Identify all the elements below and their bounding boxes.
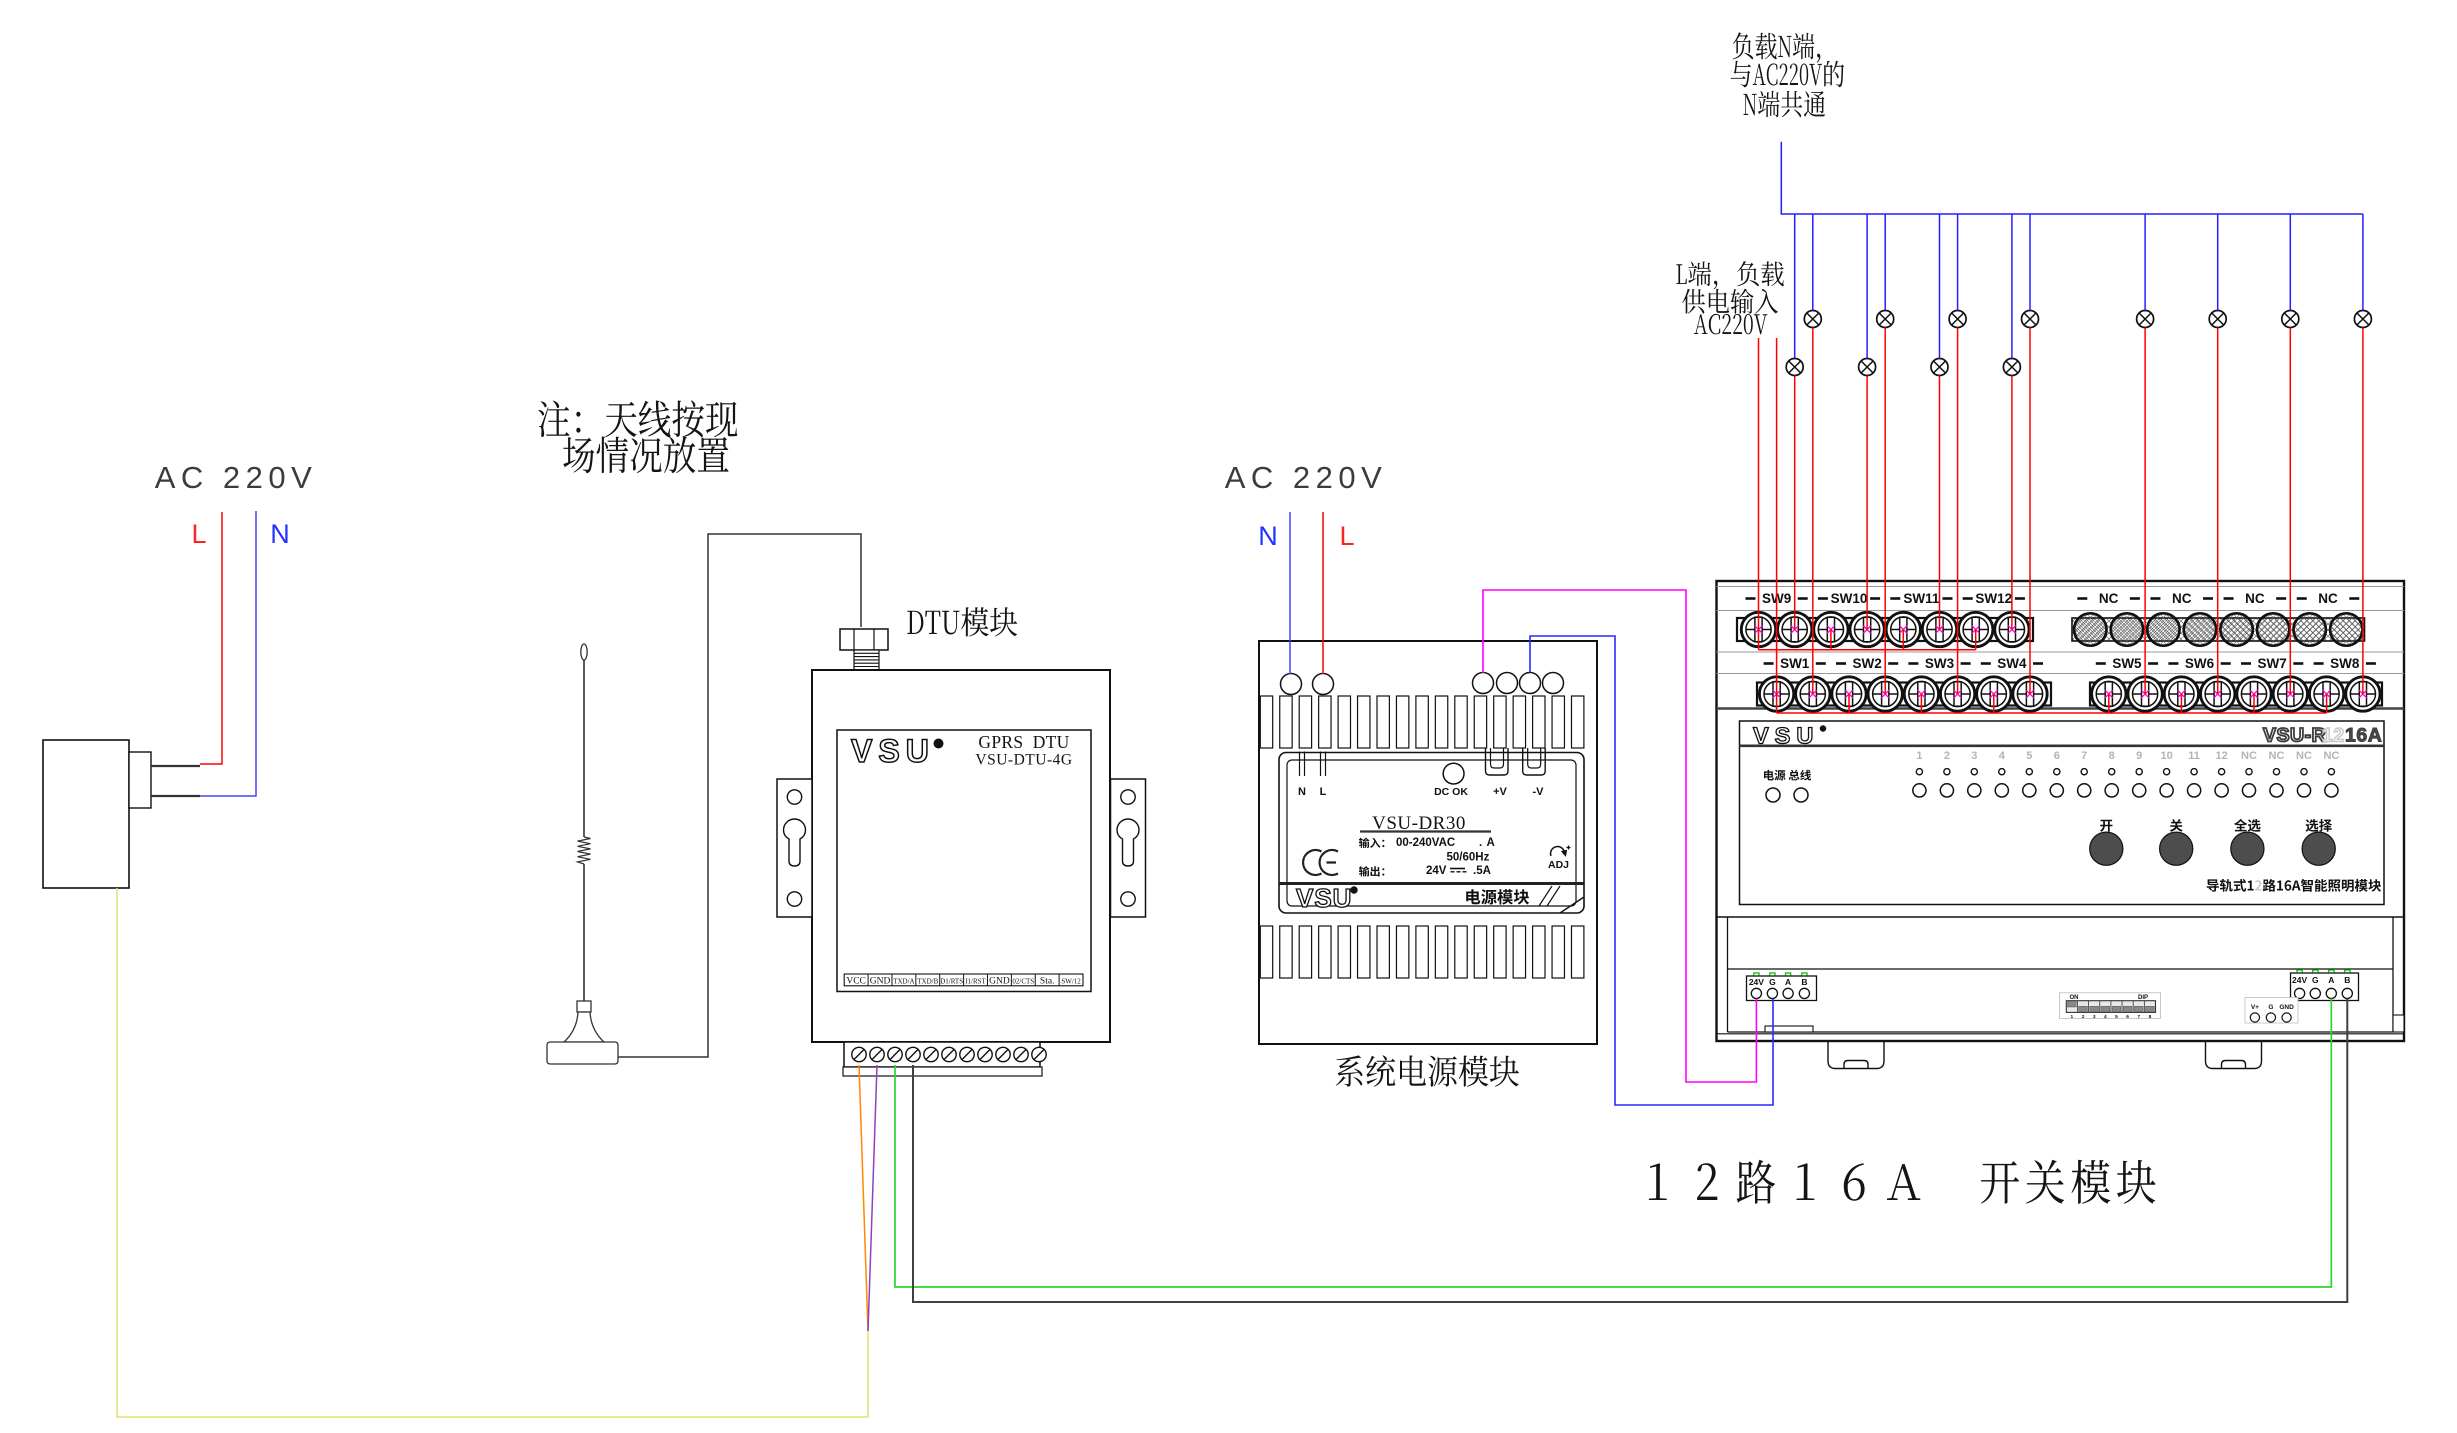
svg-text:DIP: DIP [2138,995,2148,1001]
svg-text:16A: 16A [2345,725,2382,747]
svg-text:7: 7 [2081,750,2087,762]
svg-text:+V: +V [1493,786,1507,798]
svg-text:A: A [1487,837,1495,849]
svg-text:VSU: VSU [1296,883,1352,913]
svg-text:SW11: SW11 [1903,591,1940,606]
svg-text:00-240VAC: 00-240VAC [1396,837,1455,849]
svg-text:B: B [2344,975,2350,985]
svg-text:8: 8 [2149,1014,2152,1020]
svg-text:5: 5 [2115,1014,2118,1020]
svg-text:N: N [1258,521,1278,551]
svg-text:L: L [191,519,206,549]
svg-text:DC OK: DC OK [1434,786,1468,798]
svg-text:7: 7 [2137,1014,2140,1020]
svg-text:VCC: VCC [846,977,866,987]
svg-text:TXD/B: TXD/B [917,978,938,986]
svg-text:3: 3 [2093,1014,2096,1020]
svg-text:NC: NC [2296,750,2312,762]
svg-text:N: N [1298,786,1306,798]
svg-text:NC: NC [2269,750,2285,762]
svg-text:TXD/A: TXD/A [893,978,914,986]
svg-text:NC: NC [2099,591,2119,606]
svg-text:-V: -V [1533,786,1545,798]
svg-text:12: 12 [2322,725,2345,747]
svg-text:AC 220V: AC 220V [155,460,318,495]
svg-text:NC: NC [2172,591,2192,606]
svg-text:L: L [1320,786,1327,798]
svg-text:G: G [2268,1004,2273,1011]
svg-text:VSU-R: VSU-R [2263,725,2326,747]
svg-text:6: 6 [2054,750,2060,762]
svg-text:NC: NC [2241,750,2257,762]
svg-text:6: 6 [2126,1014,2129,1020]
svg-text:SW8: SW8 [2330,656,2360,671]
svg-text:9: 9 [2136,750,2142,762]
svg-text:.5A: .5A [1473,865,1491,877]
svg-text:L: L [1339,521,1354,551]
svg-text:GND: GND [2279,1004,2294,1011]
svg-text:ON: ON [2070,995,2079,1001]
svg-text:24V: 24V [1749,977,1764,987]
svg-text:2: 2 [2082,1014,2085,1020]
svg-text:4: 4 [1999,750,2006,762]
svg-text:NC: NC [2245,591,2265,606]
svg-text:1: 1 [1916,750,1922,762]
svg-text:SW6: SW6 [2185,656,2215,671]
svg-text:3: 3 [1971,750,1977,762]
svg-text:SW12: SW12 [1975,591,2012,606]
svg-text:V+: V+ [2251,1004,2259,1011]
svg-text:24V: 24V [2292,975,2307,985]
svg-text:24V: 24V [1426,865,1447,877]
svg-text:12: 12 [2215,750,2227,762]
svg-text:VSU: VSU [851,733,935,769]
svg-text:I1/RST: I1/RST [965,978,986,986]
svg-text:8: 8 [2109,750,2115,762]
svg-text:GND: GND [989,977,1010,987]
svg-text:SW1: SW1 [1780,656,1810,671]
svg-text:5: 5 [2026,750,2032,762]
svg-text:SW/12: SW/12 [1061,978,1081,986]
svg-text:NC: NC [2323,750,2339,762]
svg-text:Sta.: Sta. [1040,977,1055,987]
svg-text:11: 11 [2188,750,2200,762]
svg-text:GND: GND [870,977,891,987]
svg-text:B: B [1801,977,1807,987]
svg-text:4: 4 [2104,1014,2107,1020]
svg-text:SW7: SW7 [2258,656,2287,671]
svg-text:02/CTS: 02/CTS [1012,978,1034,986]
svg-text:.: . [1479,837,1482,849]
svg-text:SW5: SW5 [2112,656,2142,671]
svg-text:NC: NC [2318,591,2338,606]
svg-text:50/60Hz: 50/60Hz [1447,852,1490,864]
svg-text:SW4: SW4 [1997,656,2027,671]
svg-text:A: A [1785,977,1791,987]
svg-text:AC 220V: AC 220V [1225,460,1388,495]
svg-text:ADJ: ADJ [1548,859,1569,871]
svg-text:2: 2 [1944,750,1950,762]
svg-text:G: G [2312,975,2319,985]
svg-text:D1/RTS: D1/RTS [940,978,963,986]
svg-text:SW10: SW10 [1831,591,1868,606]
svg-text:SW3: SW3 [1925,656,1955,671]
svg-text:10: 10 [2160,750,2172,762]
svg-text:G: G [1769,977,1776,987]
svg-text:1: 1 [2071,1014,2074,1020]
svg-text:N: N [270,519,290,549]
svg-text:A: A [2328,975,2334,985]
svg-text:VSU-DTU-4G: VSU-DTU-4G [975,752,1072,769]
svg-text:GPRS DTU: GPRS DTU [978,732,1069,752]
svg-text:SW2: SW2 [1852,656,1881,671]
